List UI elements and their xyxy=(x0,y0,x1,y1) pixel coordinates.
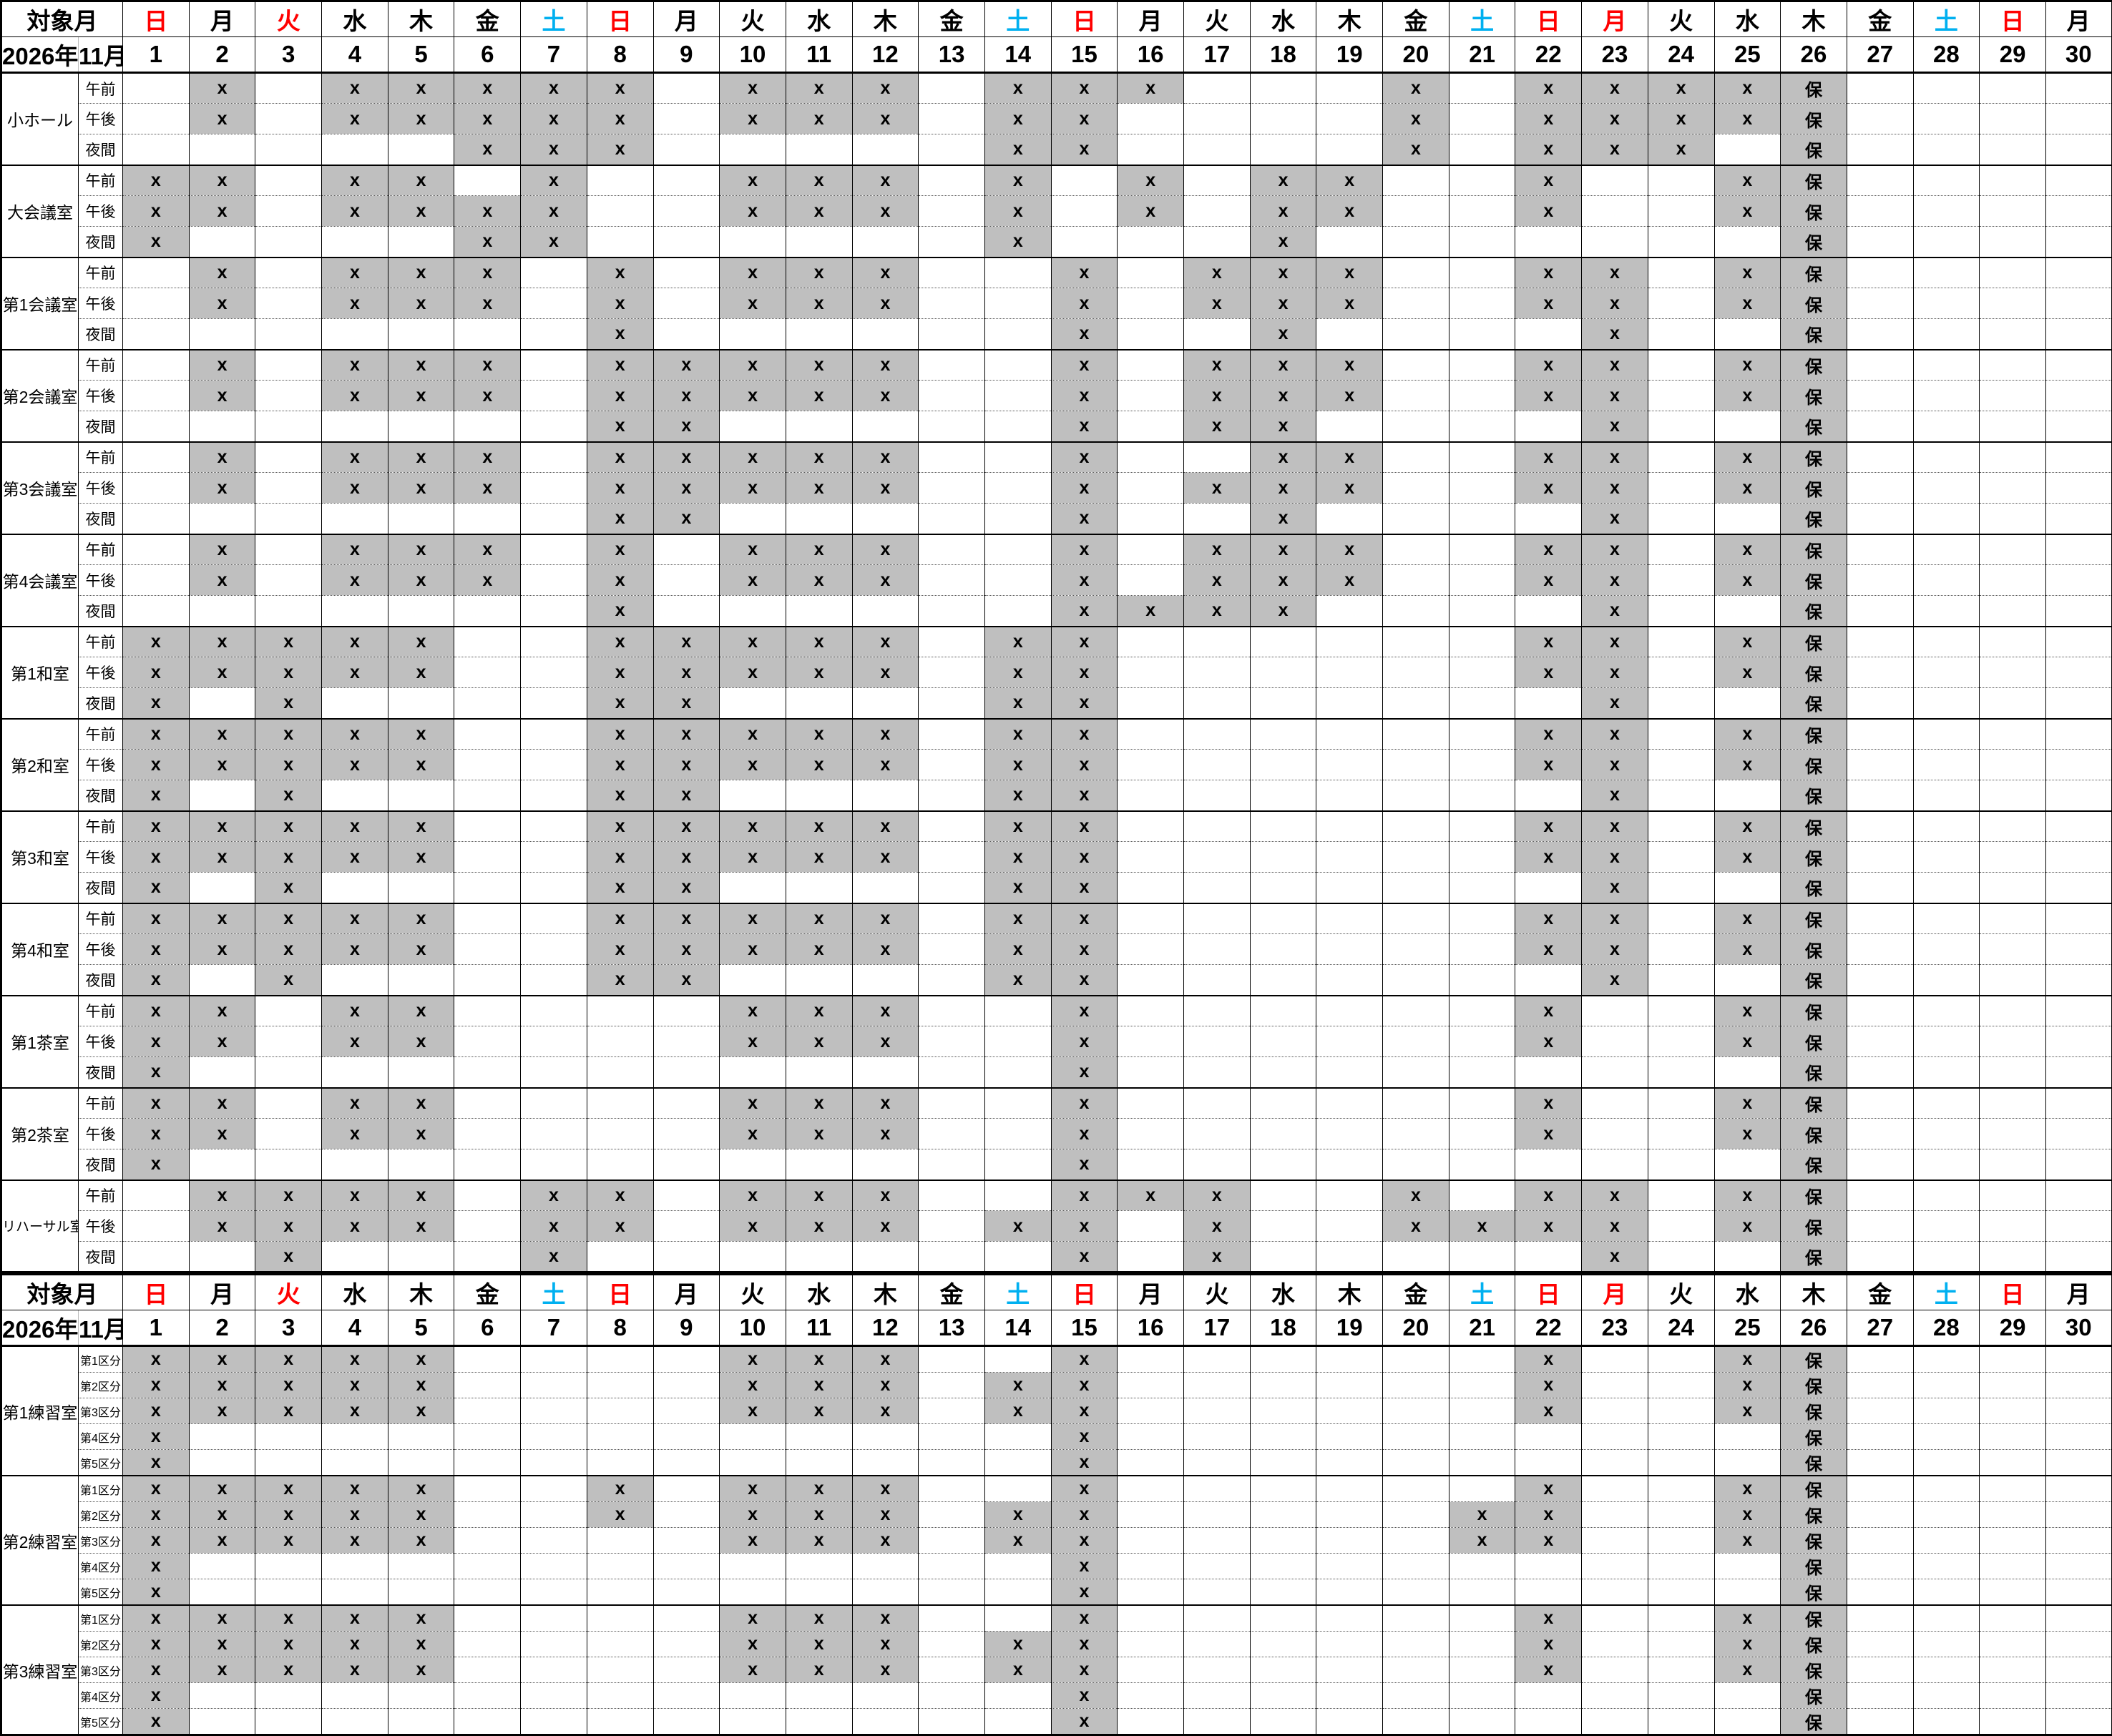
grid-cell xyxy=(521,1657,587,1683)
grid-cell xyxy=(653,1149,720,1180)
grid-cell xyxy=(984,1149,1051,1180)
availability-row: 午後xxxxxxxxxxxxxxx保 xyxy=(1,288,2112,319)
grid-cell xyxy=(587,1632,653,1657)
grid-cell xyxy=(919,873,985,903)
grid-cell xyxy=(1316,996,1383,1026)
grid-cell xyxy=(1449,227,1515,258)
grid-cell xyxy=(454,504,521,534)
grid-cell xyxy=(653,1424,720,1450)
grid-cell xyxy=(1383,1057,1449,1088)
grid-cell: x xyxy=(1051,996,1118,1026)
grid-cell xyxy=(1515,1579,1582,1606)
grid-cell xyxy=(1847,873,1913,903)
grid-cell xyxy=(1383,996,1449,1026)
availability-row: 大会議室午前xxxxxxxxxxxxxx保 xyxy=(1,165,2112,196)
grid-cell xyxy=(1648,473,1714,504)
grid-cell xyxy=(1648,873,1714,903)
slot-label: 第3区分 xyxy=(79,1657,123,1683)
grid-cell: x xyxy=(1515,104,1582,134)
grid-cell: 保 xyxy=(1781,1632,1847,1657)
grid-cell: x xyxy=(587,288,653,319)
grid-cell xyxy=(1383,534,1449,565)
grid-cell: x xyxy=(720,196,786,227)
grid-cell xyxy=(653,565,720,596)
grid-cell: x xyxy=(852,350,919,381)
grid-cell xyxy=(1316,934,1383,965)
grid-cell xyxy=(1316,411,1383,442)
grid-cell xyxy=(1913,657,1980,688)
room-name: 第3和室 xyxy=(1,811,79,903)
grid-cell: x xyxy=(587,381,653,411)
grid-cell: x xyxy=(1051,1424,1118,1450)
grid-cell: x xyxy=(255,1657,322,1683)
grid-cell xyxy=(2045,196,2112,227)
grid-cell xyxy=(919,780,985,811)
grid-cell: x xyxy=(852,196,919,227)
grid-cell xyxy=(1980,1683,2046,1709)
grid-cell xyxy=(1847,1605,1913,1632)
grid-cell xyxy=(1449,596,1515,627)
grid-cell: x xyxy=(388,1088,454,1119)
grid-cell: x xyxy=(1051,750,1118,780)
grid-cell xyxy=(1648,165,1714,196)
weekday-header-12: 木 xyxy=(852,1275,919,1310)
grid-cell: x xyxy=(454,350,521,381)
grid-cell: x xyxy=(255,750,322,780)
date-header-23: 23 xyxy=(1582,1310,1648,1346)
weekday-header-26: 木 xyxy=(1781,1,1847,37)
slot-label: 第4区分 xyxy=(79,1683,123,1709)
grid-cell: x xyxy=(255,1211,322,1242)
grid-cell: x xyxy=(1582,934,1648,965)
grid-cell xyxy=(454,165,521,196)
grid-cell: x xyxy=(123,1554,190,1579)
grid-cell xyxy=(1250,750,1316,780)
weekday-header-8: 日 xyxy=(587,1275,653,1310)
grid-cell xyxy=(1847,1119,1913,1149)
weekday-header-13: 金 xyxy=(919,1275,985,1310)
grid-cell: x xyxy=(984,165,1051,196)
grid-cell xyxy=(984,1242,1051,1272)
grid-cell: x xyxy=(653,442,720,473)
grid-cell xyxy=(1316,227,1383,258)
grid-cell xyxy=(1184,688,1251,719)
grid-cell: x xyxy=(388,73,454,104)
grid-cell xyxy=(653,227,720,258)
grid-cell: x xyxy=(322,288,388,319)
grid-cell: x xyxy=(322,1528,388,1554)
grid-cell xyxy=(1250,780,1316,811)
weekday-header-29: 日 xyxy=(1980,1275,2046,1310)
weekday-header-29: 日 xyxy=(1980,1,2046,37)
grid-cell: x xyxy=(322,657,388,688)
grid-cell: x xyxy=(852,719,919,750)
grid-cell xyxy=(919,1242,985,1272)
grid-cell xyxy=(1847,411,1913,442)
grid-cell xyxy=(1316,1528,1383,1554)
grid-cell xyxy=(1847,565,1913,596)
grid-cell: x xyxy=(1250,442,1316,473)
grid-cell: x xyxy=(189,1180,255,1211)
grid-cell xyxy=(1847,842,1913,873)
grid-cell xyxy=(521,750,587,780)
slot-label: 夜間 xyxy=(79,504,123,534)
grid-cell xyxy=(1250,1057,1316,1088)
grid-cell xyxy=(521,688,587,719)
grid-cell xyxy=(454,934,521,965)
grid-cell xyxy=(786,1149,852,1180)
date-header-25: 25 xyxy=(1714,37,1781,73)
grid-cell xyxy=(1250,996,1316,1026)
grid-cell: 保 xyxy=(1781,1346,1847,1373)
grid-cell xyxy=(720,1450,786,1476)
date-header-18: 18 xyxy=(1250,37,1316,73)
grid-cell xyxy=(1250,1554,1316,1579)
grid-cell xyxy=(1847,1528,1913,1554)
grid-cell xyxy=(2045,411,2112,442)
grid-cell: x xyxy=(521,104,587,134)
room-name: 第2会議室 xyxy=(1,350,79,442)
grid-cell xyxy=(1184,1683,1251,1709)
grid-cell: 保 xyxy=(1781,1683,1847,1709)
grid-cell xyxy=(1383,903,1449,934)
grid-cell: x xyxy=(786,719,852,750)
grid-cell xyxy=(1582,1528,1648,1554)
slot-label: 午前 xyxy=(79,1088,123,1119)
availability-row: 夜間xxxxx保 xyxy=(1,504,2112,534)
grid-cell xyxy=(1316,1579,1383,1606)
availability-row: 第1和室午前xxxxxxxxxxxxxxx保 xyxy=(1,627,2112,657)
grid-cell xyxy=(1913,1528,1980,1554)
grid-cell xyxy=(919,319,985,350)
grid-cell xyxy=(1913,442,1980,473)
slot-label: 午前 xyxy=(79,903,123,934)
grid-cell xyxy=(786,965,852,996)
grid-cell xyxy=(1316,1450,1383,1476)
date-header-10: 10 xyxy=(720,37,786,73)
grid-cell xyxy=(1980,996,2046,1026)
grid-cell xyxy=(720,504,786,534)
grid-cell xyxy=(454,627,521,657)
grid-cell: x xyxy=(852,1180,919,1211)
grid-cell xyxy=(1316,596,1383,627)
grid-cell: x xyxy=(984,903,1051,934)
grid-cell xyxy=(1316,1346,1383,1373)
grid-cell: x xyxy=(786,996,852,1026)
grid-cell xyxy=(653,1528,720,1554)
grid-cell xyxy=(720,1149,786,1180)
grid-cell xyxy=(1980,1424,2046,1450)
grid-cell: x xyxy=(1051,965,1118,996)
grid-cell: x xyxy=(1051,381,1118,411)
grid-cell xyxy=(919,1554,985,1579)
availability-row: 第5区分xx保 xyxy=(1,1579,2112,1606)
weekday-header-21: 土 xyxy=(1449,1,1515,37)
grid-cell xyxy=(189,873,255,903)
grid-cell: x xyxy=(1714,1211,1781,1242)
grid-cell xyxy=(1582,1605,1648,1632)
grid-cell xyxy=(521,934,587,965)
slot-label: 第2区分 xyxy=(79,1502,123,1528)
grid-cell xyxy=(1980,750,2046,780)
grid-cell: x xyxy=(1316,565,1383,596)
grid-cell: x xyxy=(255,1180,322,1211)
grid-cell xyxy=(189,504,255,534)
grid-cell: x xyxy=(1582,688,1648,719)
grid-cell xyxy=(2045,750,2112,780)
slot-label: 夜間 xyxy=(79,411,123,442)
availability-row: 夜間xxxxxx保 xyxy=(1,596,2112,627)
grid-cell: 保 xyxy=(1781,350,1847,381)
grid-cell xyxy=(322,411,388,442)
availability-row: 第2区分xxxxxxxxxxxx保 xyxy=(1,1632,2112,1657)
grid-cell: x xyxy=(322,534,388,565)
grid-cell: x xyxy=(1184,596,1251,627)
grid-cell: x xyxy=(1250,565,1316,596)
grid-cell xyxy=(1118,134,1184,165)
grid-cell xyxy=(2045,1026,2112,1057)
grid-cell xyxy=(2045,719,2112,750)
grid-cell xyxy=(919,104,985,134)
grid-cell xyxy=(1913,1180,1980,1211)
grid-cell xyxy=(1913,350,1980,381)
grid-cell xyxy=(1118,442,1184,473)
grid-cell: x xyxy=(1316,350,1383,381)
grid-cell xyxy=(2045,1709,2112,1735)
grid-cell: x xyxy=(984,750,1051,780)
grid-cell: x xyxy=(587,73,653,104)
grid-cell xyxy=(1847,1632,1913,1657)
grid-cell: x xyxy=(1051,1632,1118,1657)
grid-cell xyxy=(1250,134,1316,165)
grid-cell: x xyxy=(388,903,454,934)
grid-cell: x xyxy=(255,903,322,934)
grid-cell: x xyxy=(1449,1528,1515,1554)
grid-cell xyxy=(1118,657,1184,688)
grid-cell xyxy=(1250,1502,1316,1528)
date-header-4: 4 xyxy=(322,1310,388,1346)
grid-cell xyxy=(454,1528,521,1554)
grid-cell: 保 xyxy=(1781,1554,1847,1579)
grid-cell xyxy=(1913,965,1980,996)
grid-cell xyxy=(1383,411,1449,442)
grid-cell: x xyxy=(852,165,919,196)
grid-cell: x xyxy=(653,688,720,719)
grid-cell xyxy=(1913,1026,1980,1057)
grid-cell xyxy=(521,381,587,411)
grid-cell: x xyxy=(1184,1180,1251,1211)
grid-cell: x xyxy=(852,811,919,842)
availability-row: 午後xxxxxxxxxxxxxxxxx保 xyxy=(1,1211,2112,1242)
grid-cell xyxy=(1118,1502,1184,1528)
grid-cell xyxy=(388,134,454,165)
grid-cell xyxy=(1980,657,2046,688)
grid-cell: x xyxy=(189,442,255,473)
grid-cell: x xyxy=(653,965,720,996)
year-label: 2026年 xyxy=(1,1310,79,1346)
grid-cell: x xyxy=(123,1450,190,1476)
grid-cell xyxy=(1449,442,1515,473)
grid-cell xyxy=(1383,1088,1449,1119)
grid-cell: x xyxy=(123,996,190,1026)
grid-cell xyxy=(521,1605,587,1632)
grid-cell xyxy=(919,842,985,873)
grid-cell: x xyxy=(1051,1398,1118,1424)
grid-cell xyxy=(786,319,852,350)
grid-cell xyxy=(123,473,190,504)
grid-cell: x xyxy=(1051,1057,1118,1088)
grid-cell xyxy=(720,688,786,719)
grid-cell xyxy=(919,1180,985,1211)
grid-cell xyxy=(1913,1119,1980,1149)
grid-cell xyxy=(1648,596,1714,627)
grid-cell xyxy=(1383,227,1449,258)
slot-label: 午前 xyxy=(79,996,123,1026)
grid-cell: x xyxy=(1383,1180,1449,1211)
grid-cell xyxy=(1449,1242,1515,1272)
grid-cell xyxy=(1316,1211,1383,1242)
grid-cell xyxy=(1582,1119,1648,1149)
grid-cell xyxy=(255,1149,322,1180)
grid-cell xyxy=(521,1088,587,1119)
grid-cell: x xyxy=(786,1502,852,1528)
grid-cell xyxy=(984,1180,1051,1211)
grid-cell xyxy=(1714,134,1781,165)
grid-cell xyxy=(1648,1476,1714,1502)
grid-cell: x xyxy=(1051,1346,1118,1373)
date-header-16: 16 xyxy=(1118,37,1184,73)
grid-cell xyxy=(1383,627,1449,657)
slot-label: 午後 xyxy=(79,1211,123,1242)
grid-cell xyxy=(1582,1554,1648,1579)
grid-cell: x xyxy=(123,719,190,750)
grid-cell xyxy=(1714,504,1781,534)
weekday-header-17: 火 xyxy=(1184,1,1251,37)
grid-cell: x xyxy=(1250,504,1316,534)
availability-row: 第2会議室午前xxxxxxxxxxxxxxxx保 xyxy=(1,350,2112,381)
slot-label: 午後 xyxy=(79,750,123,780)
grid-cell: x xyxy=(1582,473,1648,504)
grid-cell: 保 xyxy=(1781,1026,1847,1057)
grid-cell: x xyxy=(1648,104,1714,134)
date-header-29: 29 xyxy=(1980,37,2046,73)
grid-cell: x xyxy=(852,1657,919,1683)
grid-cell: x xyxy=(786,1528,852,1554)
grid-cell xyxy=(521,780,587,811)
grid-cell: x xyxy=(1250,258,1316,288)
grid-cell xyxy=(919,719,985,750)
date-header-15: 15 xyxy=(1051,37,1118,73)
grid-cell xyxy=(255,196,322,227)
grid-cell xyxy=(454,1502,521,1528)
grid-cell: x xyxy=(1714,165,1781,196)
grid-cell xyxy=(2045,1057,2112,1088)
grid-cell xyxy=(1980,1373,2046,1398)
grid-cell xyxy=(1449,780,1515,811)
grid-cell: x xyxy=(1582,1211,1648,1242)
grid-cell xyxy=(1316,1119,1383,1149)
grid-cell xyxy=(984,473,1051,504)
grid-cell xyxy=(1184,104,1251,134)
grid-cell xyxy=(1449,1057,1515,1088)
grid-cell xyxy=(1648,1346,1714,1373)
grid-cell xyxy=(521,442,587,473)
weekday-header-4: 水 xyxy=(322,1275,388,1310)
grid-cell xyxy=(1118,1632,1184,1657)
grid-cell: x xyxy=(984,965,1051,996)
grid-cell: x xyxy=(1051,1476,1118,1502)
grid-cell: x xyxy=(322,719,388,750)
grid-cell xyxy=(587,1683,653,1709)
grid-cell xyxy=(1913,1057,1980,1088)
grid-cell xyxy=(322,1709,388,1735)
grid-cell xyxy=(919,1528,985,1554)
grid-cell xyxy=(1449,688,1515,719)
grid-cell xyxy=(1847,627,1913,657)
grid-cell xyxy=(1648,1088,1714,1119)
grid-cell: x xyxy=(653,350,720,381)
grid-cell xyxy=(587,1709,653,1735)
grid-cell xyxy=(852,1424,919,1450)
grid-cell: x xyxy=(454,534,521,565)
grid-cell xyxy=(454,1632,521,1657)
grid-cell xyxy=(1980,1579,2046,1606)
grid-cell xyxy=(1648,903,1714,934)
grid-cell xyxy=(1383,288,1449,319)
grid-cell: x xyxy=(388,1346,454,1373)
grid-cell xyxy=(1316,104,1383,134)
grid-cell xyxy=(852,134,919,165)
grid-cell: x xyxy=(1316,165,1383,196)
grid-cell: x xyxy=(720,1528,786,1554)
grid-cell: 保 xyxy=(1781,1088,1847,1119)
grid-cell xyxy=(1648,227,1714,258)
grid-cell xyxy=(1250,1149,1316,1180)
grid-cell xyxy=(720,873,786,903)
grid-cell: x xyxy=(852,627,919,657)
grid-cell xyxy=(1582,1683,1648,1709)
grid-cell xyxy=(786,227,852,258)
grid-cell xyxy=(1515,1450,1582,1476)
grid-cell: 保 xyxy=(1781,688,1847,719)
grid-cell xyxy=(255,565,322,596)
grid-cell xyxy=(1980,1026,2046,1057)
grid-cell: x xyxy=(189,1605,255,1632)
grid-cell xyxy=(1449,1373,1515,1398)
weekday-header-19: 木 xyxy=(1316,1,1383,37)
grid-cell: x xyxy=(521,73,587,104)
grid-cell: x xyxy=(587,811,653,842)
grid-cell xyxy=(653,1346,720,1373)
grid-cell xyxy=(521,1373,587,1398)
grid-cell xyxy=(1316,627,1383,657)
grid-cell: x xyxy=(1714,657,1781,688)
grid-cell: x xyxy=(852,1502,919,1528)
grid-cell xyxy=(1184,1373,1251,1398)
grid-cell: x xyxy=(189,73,255,104)
grid-cell: 保 xyxy=(1781,411,1847,442)
weekday-header-5: 木 xyxy=(388,1,454,37)
grid-cell: x xyxy=(322,811,388,842)
grid-cell xyxy=(587,1528,653,1554)
grid-cell xyxy=(388,596,454,627)
availability-row: 午後xxxxxxxxxxxxxxx保 xyxy=(1,196,2112,227)
grid-cell: x xyxy=(1714,381,1781,411)
grid-cell xyxy=(454,780,521,811)
grid-cell: x xyxy=(322,442,388,473)
grid-cell xyxy=(1847,196,1913,227)
grid-cell xyxy=(123,73,190,104)
